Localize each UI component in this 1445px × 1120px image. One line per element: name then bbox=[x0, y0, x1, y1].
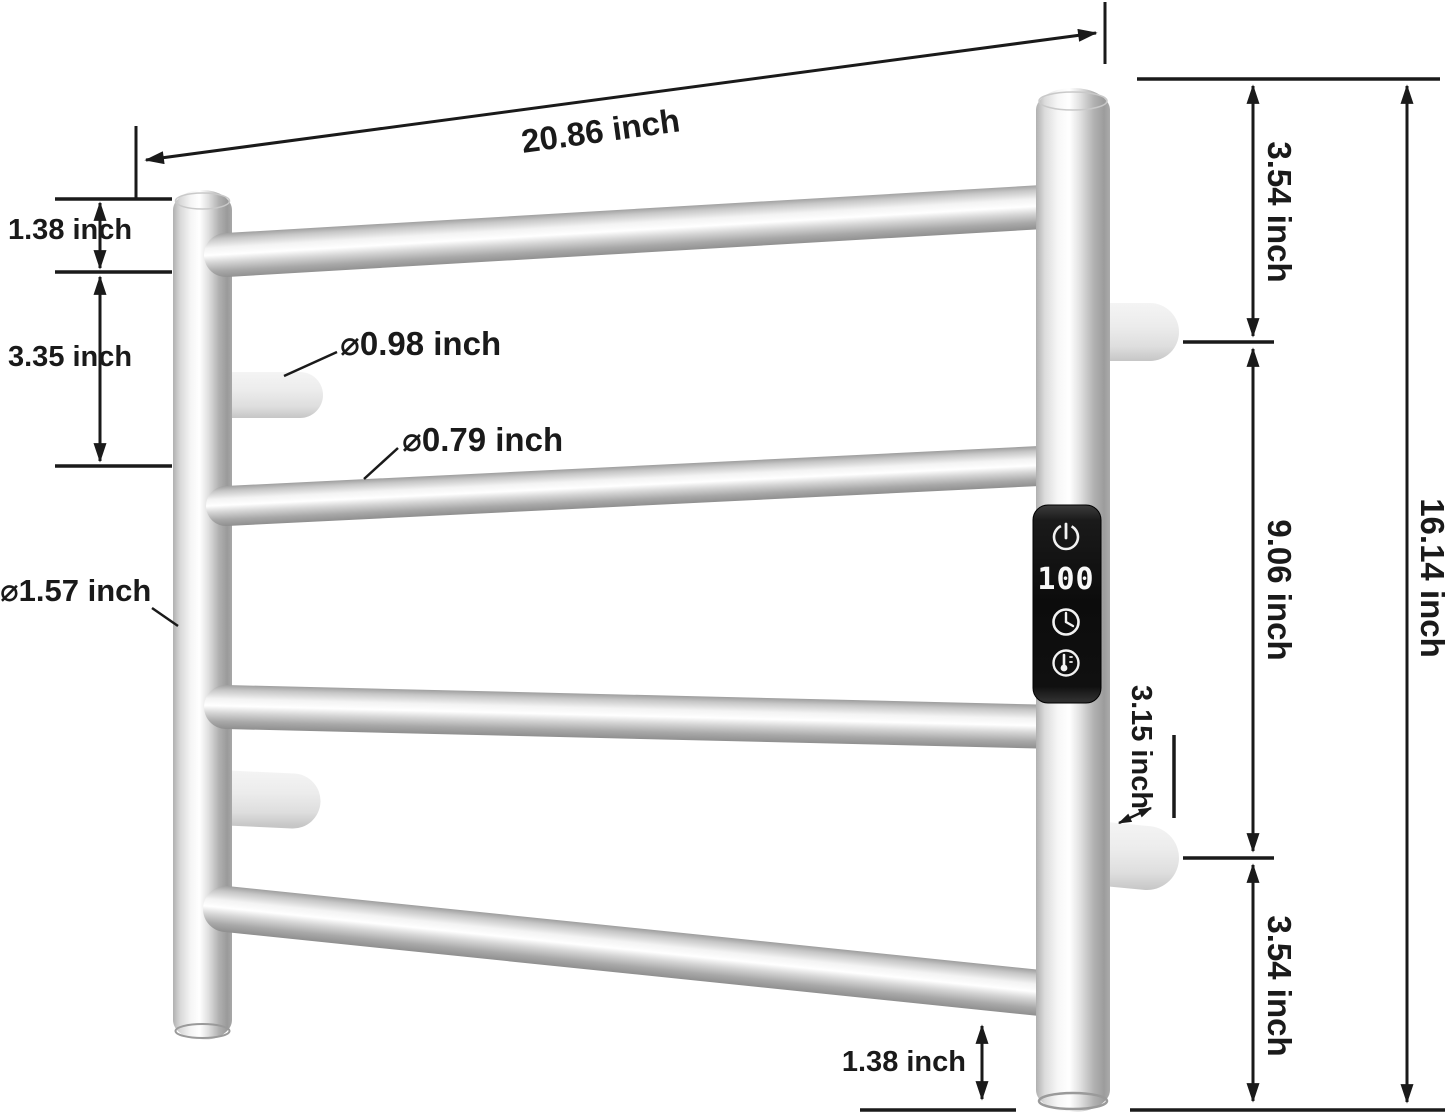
bar-2 bbox=[226, 465, 1060, 506]
label-right-mid-span: 9.06 inch bbox=[1261, 519, 1298, 660]
left-lower-peg bbox=[228, 798, 293, 801]
right-lower-peg bbox=[1105, 854, 1147, 858]
label-left-bar-spacing: 3.35 inch bbox=[8, 341, 132, 373]
label-peg-length: 3.15 inch bbox=[1125, 685, 1157, 809]
label-right-top-gap: 3.54 inch bbox=[1261, 141, 1298, 282]
towel-rack: 100 bbox=[173, 88, 1150, 1112]
label-total-height: 16.14 inch bbox=[1414, 498, 1445, 658]
label-top-width: 20.86 inch bbox=[519, 101, 682, 159]
bar-1 bbox=[226, 206, 1060, 255]
control-panel: 100 bbox=[1033, 505, 1101, 703]
label-post-diameter: ⌀1.57 inch bbox=[0, 573, 151, 608]
label-bottom-gap: 1.38 inch bbox=[842, 1046, 966, 1078]
label-bar-diameter: ⌀0.79 inch bbox=[402, 421, 563, 458]
leader-bar-diameter bbox=[364, 448, 398, 479]
bar-3 bbox=[226, 707, 1060, 727]
bar-4 bbox=[226, 909, 1060, 995]
product-dimension-diagram: 100 bbox=[0, 0, 1445, 1120]
label-right-bottom-gap: 3.54 inch bbox=[1261, 915, 1298, 1056]
towel-rack-diagram-canvas: 100 bbox=[0, 0, 1445, 1120]
leader-peg-diameter bbox=[284, 352, 337, 376]
label-left-top-gap: 1.38 inch bbox=[8, 214, 132, 246]
led-display: 100 bbox=[1037, 562, 1094, 597]
label-peg-diameter: ⌀0.98 inch bbox=[340, 325, 501, 362]
dim-top-width bbox=[136, 2, 1105, 198]
dimension-arrow bbox=[1119, 808, 1151, 823]
